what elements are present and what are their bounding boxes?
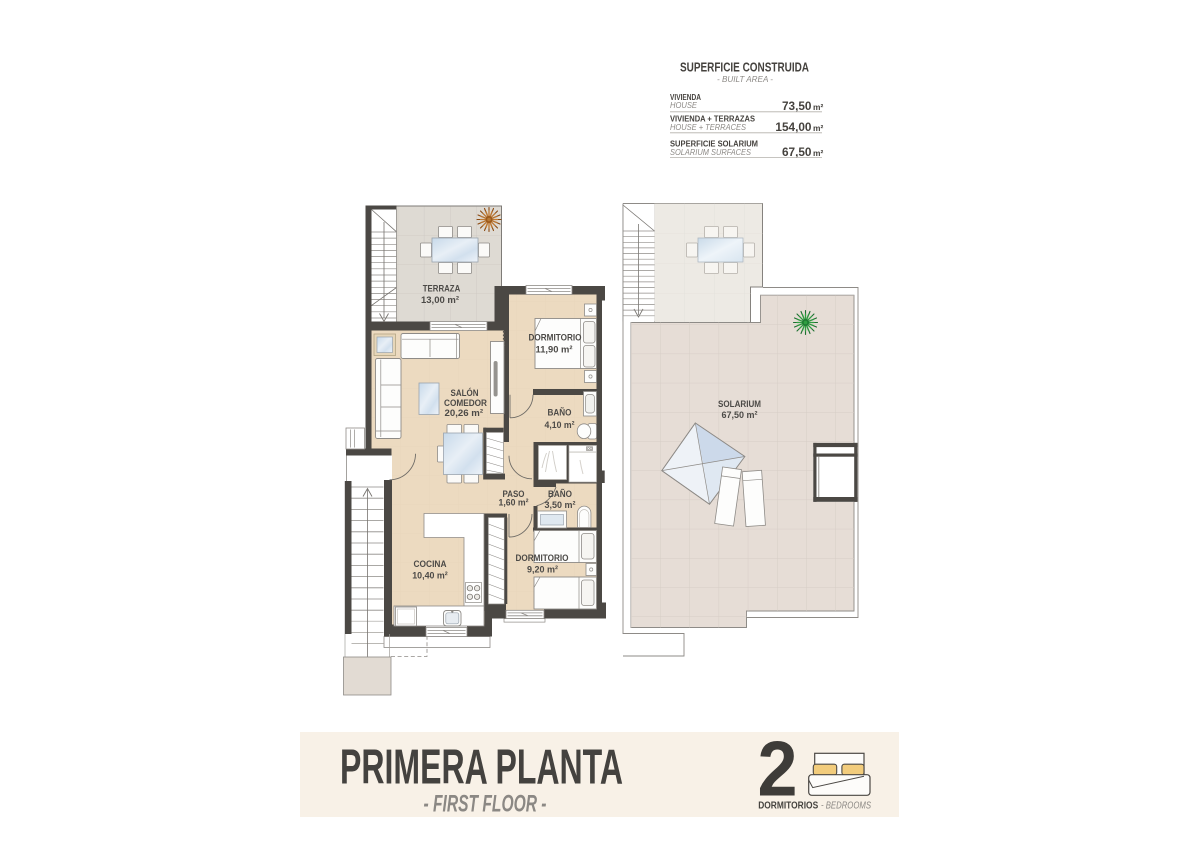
svg-text:TERRAZA: TERRAZA [423,284,461,294]
svg-text:4,10 m²: 4,10 m² [545,420,575,431]
svg-text:SALÓN: SALÓN [451,387,479,398]
svg-text:COCINA: COCINA [414,559,448,569]
svg-text:SOLARIUM: SOLARIUM [718,399,761,409]
svg-text:DORMITORIO: DORMITORIO [516,553,569,563]
svg-text:PRIMERA PLANTA: PRIMERA PLANTA [340,741,623,795]
svg-text:m²: m² [813,148,823,158]
svg-text:10,40 m²: 10,40 m² [412,571,448,582]
svg-text:154,00: 154,00 [775,120,812,134]
svg-text:SUPERFICIE CONSTRUIDA: SUPERFICIE CONSTRUIDA [680,60,809,75]
svg-text:- BEDROOMS: - BEDROOMS [821,800,871,812]
svg-text:3,50 m²: 3,50 m² [545,500,576,511]
svg-text:67,50 m²: 67,50 m² [722,410,758,421]
svg-text:BAÑO: BAÑO [548,489,572,499]
svg-text:COMEDOR: COMEDOR [444,398,488,408]
svg-text:- BUILT AREA -: - BUILT AREA - [717,75,773,84]
svg-text:13,00 m²: 13,00 m² [421,295,459,306]
svg-text:67,50: 67,50 [782,145,812,159]
svg-text:9,20 m²: 9,20 m² [527,565,558,576]
svg-text:BAÑO: BAÑO [548,408,572,418]
svg-text:- FIRST FLOOR -: - FIRST FLOOR - [424,791,547,818]
svg-text:DORMITORIOS: DORMITORIOS [758,800,818,812]
svg-text:m²: m² [813,102,823,112]
svg-text:HOUSE + TERRACES: HOUSE + TERRACES [670,123,747,132]
svg-text:73,50: 73,50 [782,99,812,113]
svg-text:DORMITORIO: DORMITORIO [529,333,582,343]
svg-text:HOUSE: HOUSE [670,101,698,110]
svg-text:SOLARIUM SURFACES: SOLARIUM SURFACES [670,148,752,157]
svg-text:m²: m² [813,123,823,133]
svg-text:1,60 m²: 1,60 m² [499,497,529,508]
svg-text:11,90 m²: 11,90 m² [536,345,573,356]
svg-text:20,26 m²: 20,26 m² [445,408,484,419]
